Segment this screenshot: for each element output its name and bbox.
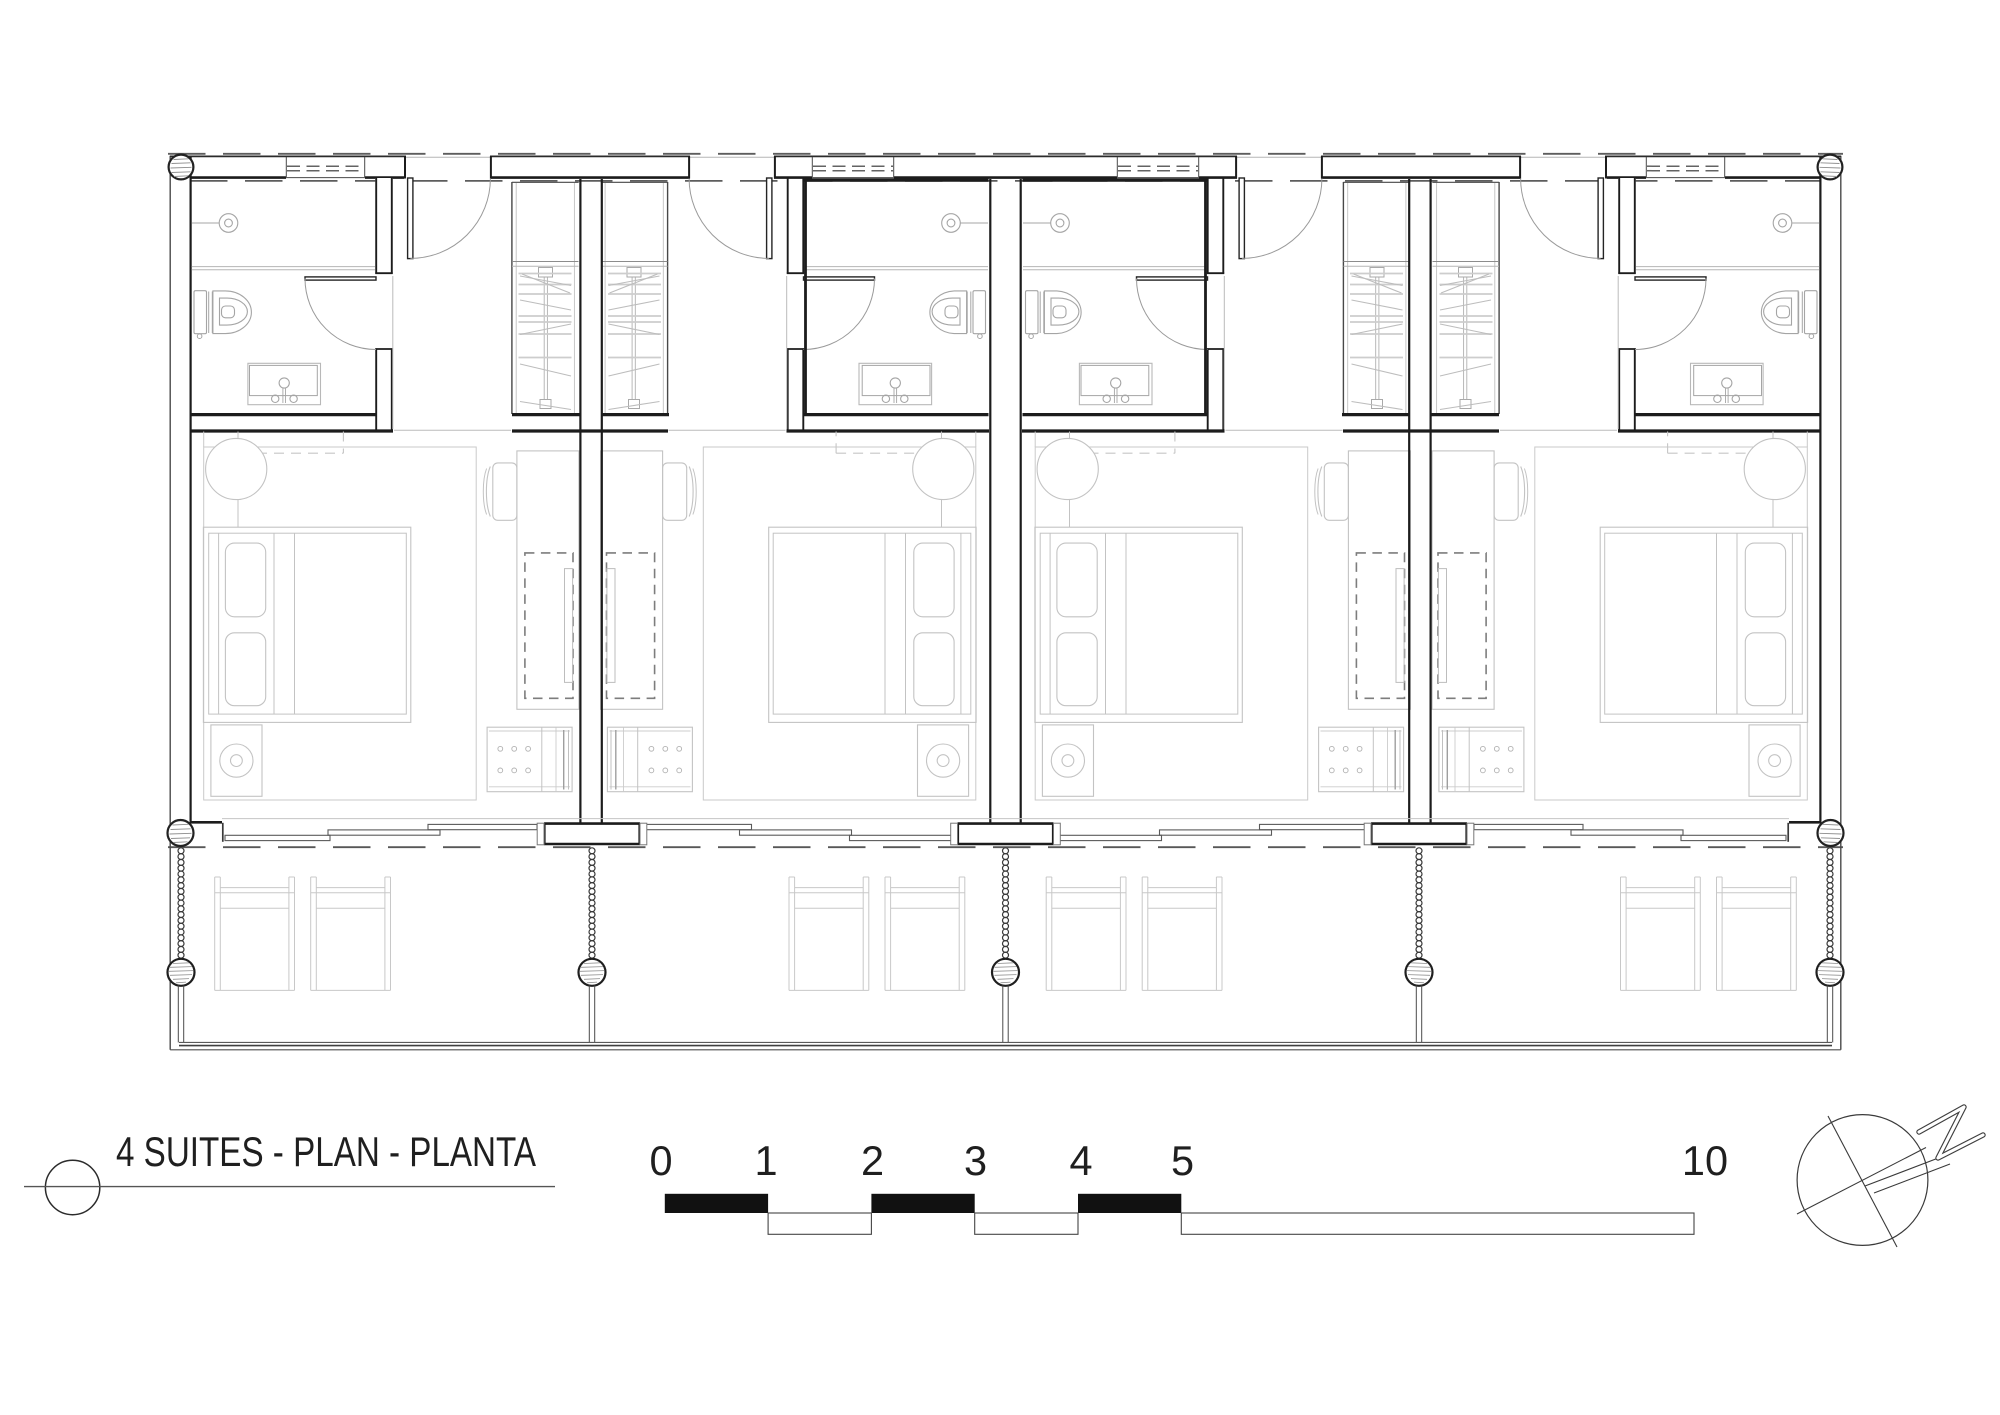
svg-text:1: 1 (754, 1137, 777, 1184)
svg-text:4 SUITES - PLAN - PLANTA: 4 SUITES - PLAN - PLANTA (116, 1128, 536, 1175)
svg-text:2: 2 (861, 1137, 884, 1184)
svg-text:3: 3 (964, 1137, 987, 1184)
svg-text:0: 0 (649, 1137, 672, 1184)
svg-text:5: 5 (1171, 1137, 1194, 1184)
svg-text:10: 10 (1682, 1137, 1728, 1184)
svg-text:4: 4 (1069, 1137, 1092, 1184)
